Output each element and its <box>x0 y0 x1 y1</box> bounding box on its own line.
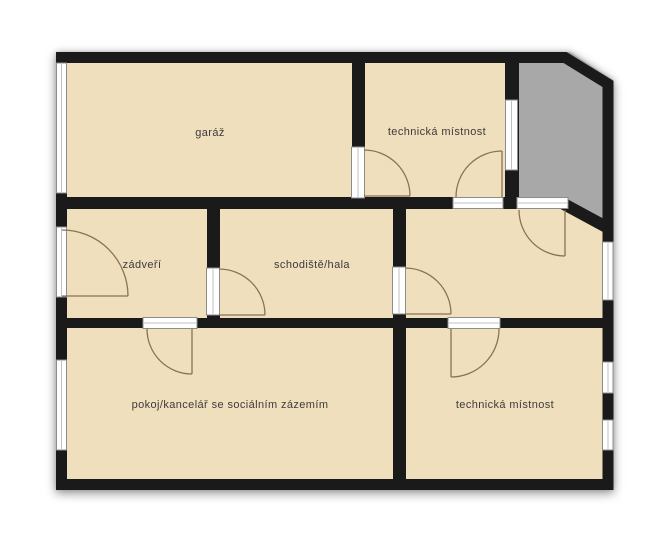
room-label-pokoj-kancelar: pokoj/kancelář se sociálním zázemím <box>132 399 329 411</box>
room-label-garaz: garáž <box>195 127 225 139</box>
room-label-zadveri: zádveří <box>123 259 162 271</box>
room-label-technicka-mistnost-bottom: technická místnost <box>456 399 554 411</box>
floor-plan: garáž technická místnost zádveří schodiš… <box>0 0 666 537</box>
room-label-schodiste-hala: schodiště/hala <box>274 259 350 271</box>
wall-center-vertical <box>393 197 406 490</box>
room-label-technicka-mistnost-top: technická místnost <box>388 126 486 138</box>
floor-plan-canvas: garáž technická místnost zádveří schodiš… <box>0 0 666 537</box>
building: garáž technická místnost zádveří schodiš… <box>56 52 613 490</box>
wall-lower-horizontal <box>56 318 613 328</box>
